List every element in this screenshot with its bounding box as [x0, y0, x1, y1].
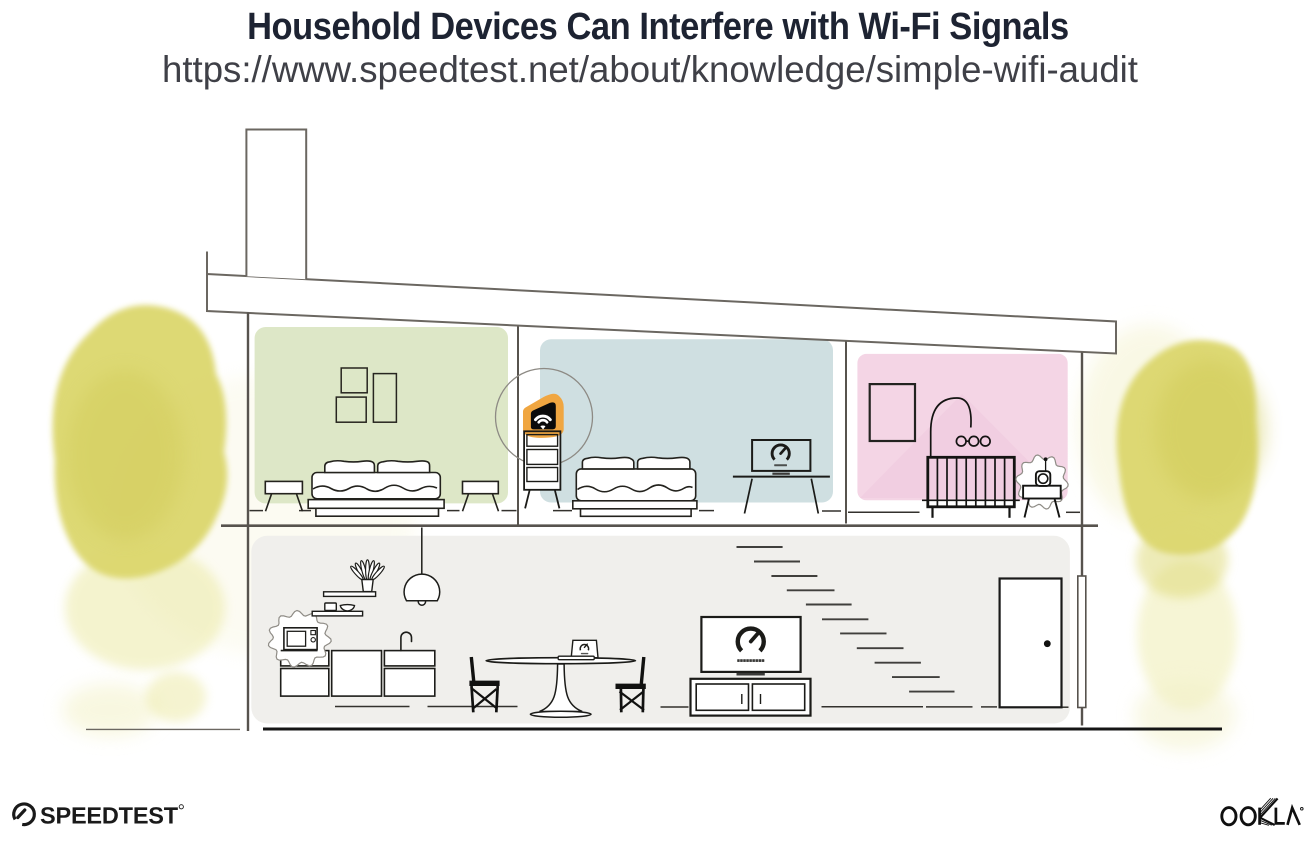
- svg-text:SPEEDTEST: SPEEDTEST: [40, 802, 179, 828]
